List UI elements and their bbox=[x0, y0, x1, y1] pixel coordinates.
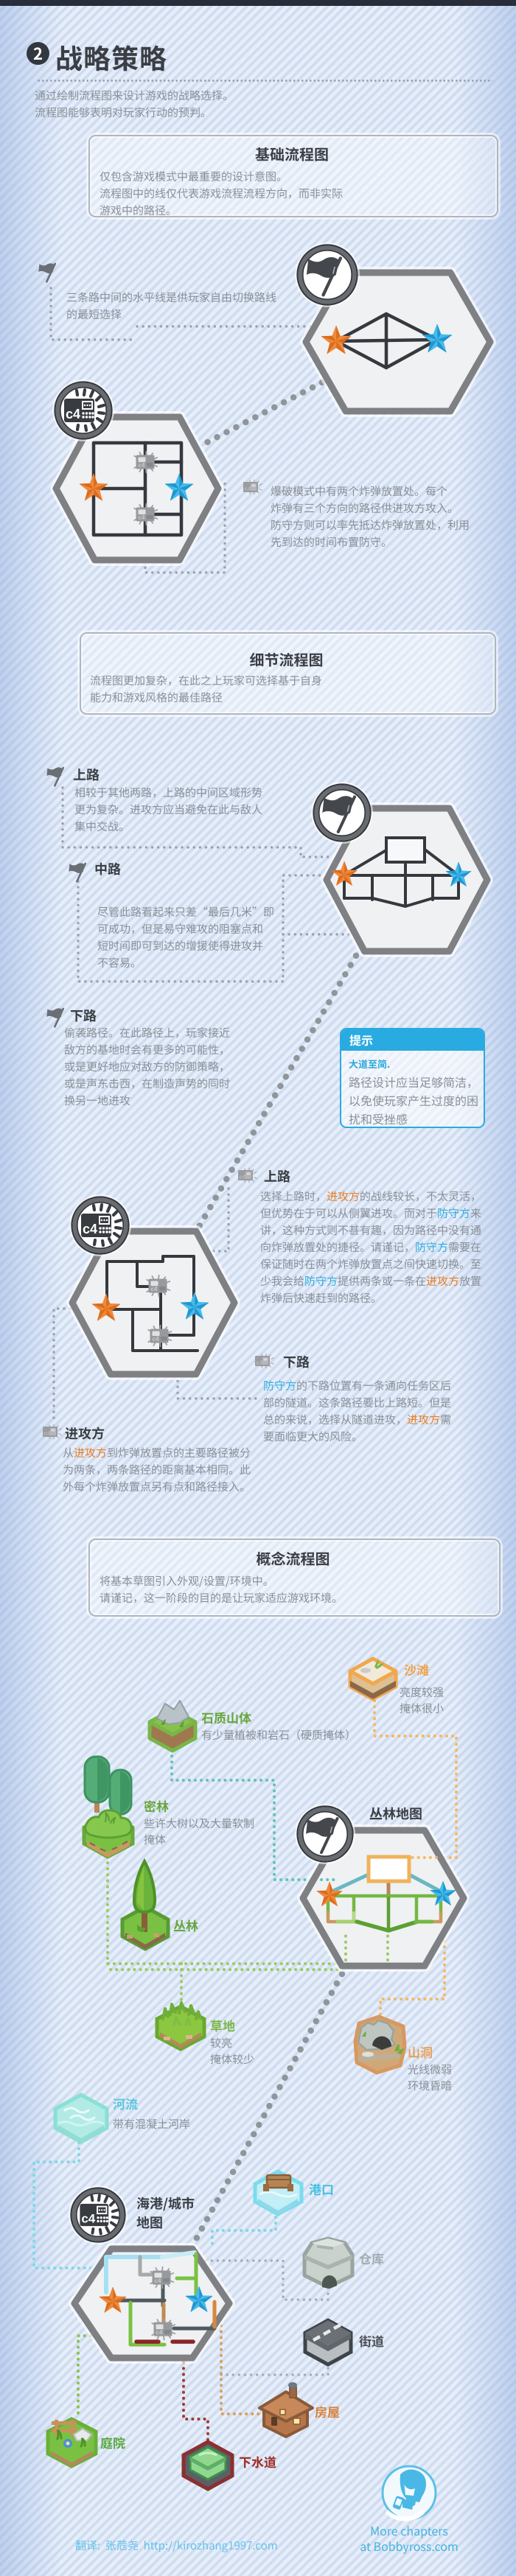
svg-text:c4: c4 bbox=[257, 1359, 263, 1366]
svg-text:c4: c4 bbox=[153, 1336, 159, 1343]
svg-text:c4: c4 bbox=[44, 1430, 51, 1437]
svg-text:c4: c4 bbox=[83, 1222, 97, 1236]
svg-text:c4: c4 bbox=[139, 514, 145, 521]
svg-text:c4: c4 bbox=[139, 462, 145, 469]
svg-text:c4: c4 bbox=[245, 486, 251, 492]
svg-text:c4: c4 bbox=[66, 407, 80, 421]
svg-text:c4: c4 bbox=[156, 2329, 163, 2336]
svg-text:c4: c4 bbox=[240, 1174, 246, 1180]
svg-text:c4: c4 bbox=[151, 1286, 158, 1292]
svg-text:c4: c4 bbox=[81, 2211, 95, 2225]
svg-text:c4: c4 bbox=[155, 2278, 161, 2284]
